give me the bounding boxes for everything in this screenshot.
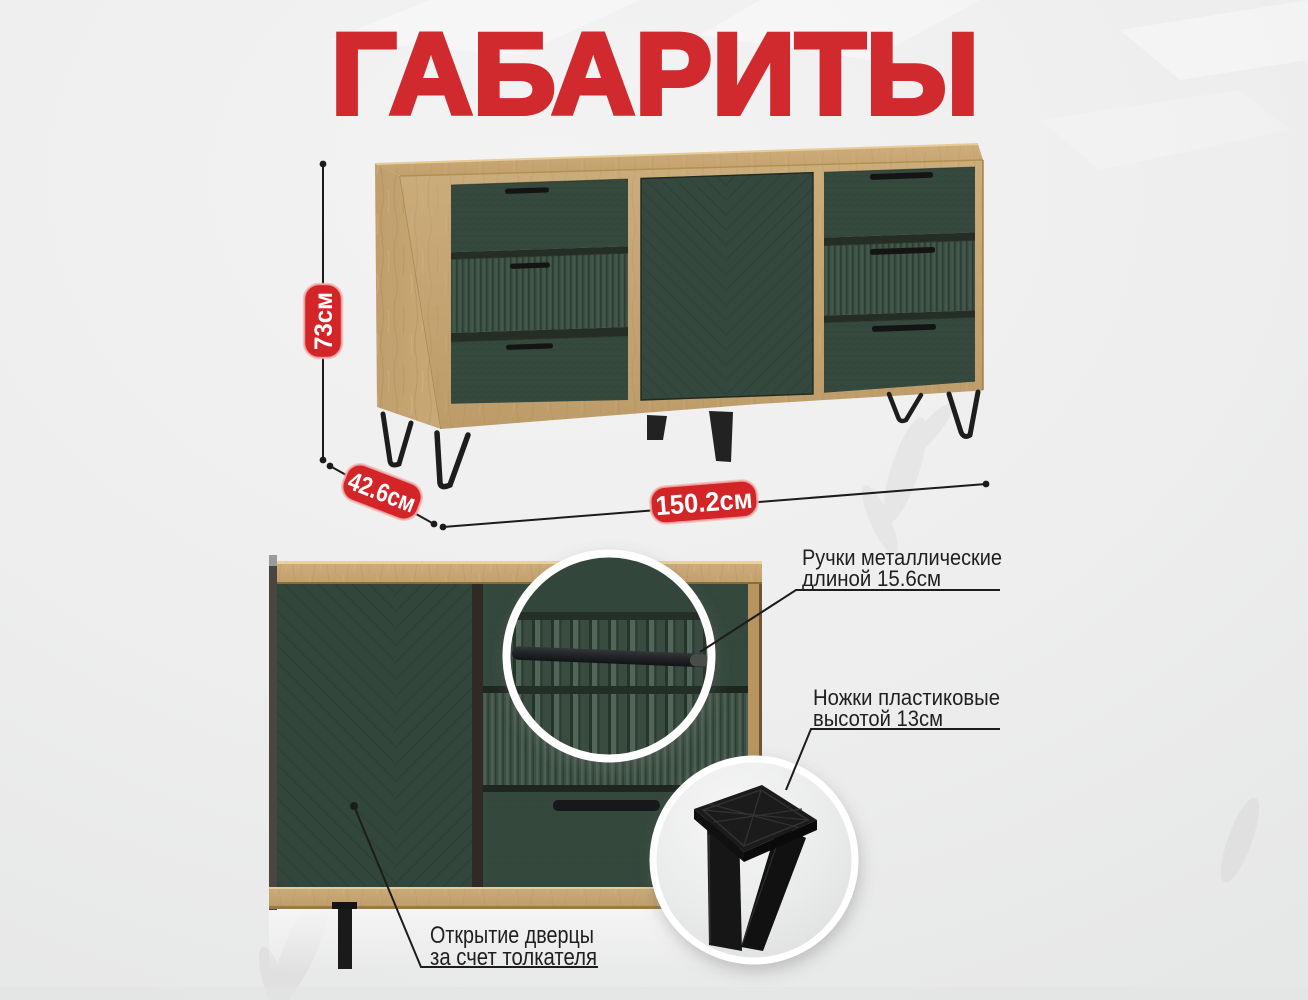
svg-text:высотой 13см: высотой 13см bbox=[813, 706, 943, 731]
svg-text:73см: 73см bbox=[310, 292, 338, 350]
svg-text:длиной 15.6см: длиной 15.6см bbox=[802, 566, 941, 591]
svg-text:ГАБАРИТЫ: ГАБАРИТЫ bbox=[331, 11, 979, 139]
svg-text:за счет толкателя: за счет толкателя bbox=[430, 944, 597, 971]
